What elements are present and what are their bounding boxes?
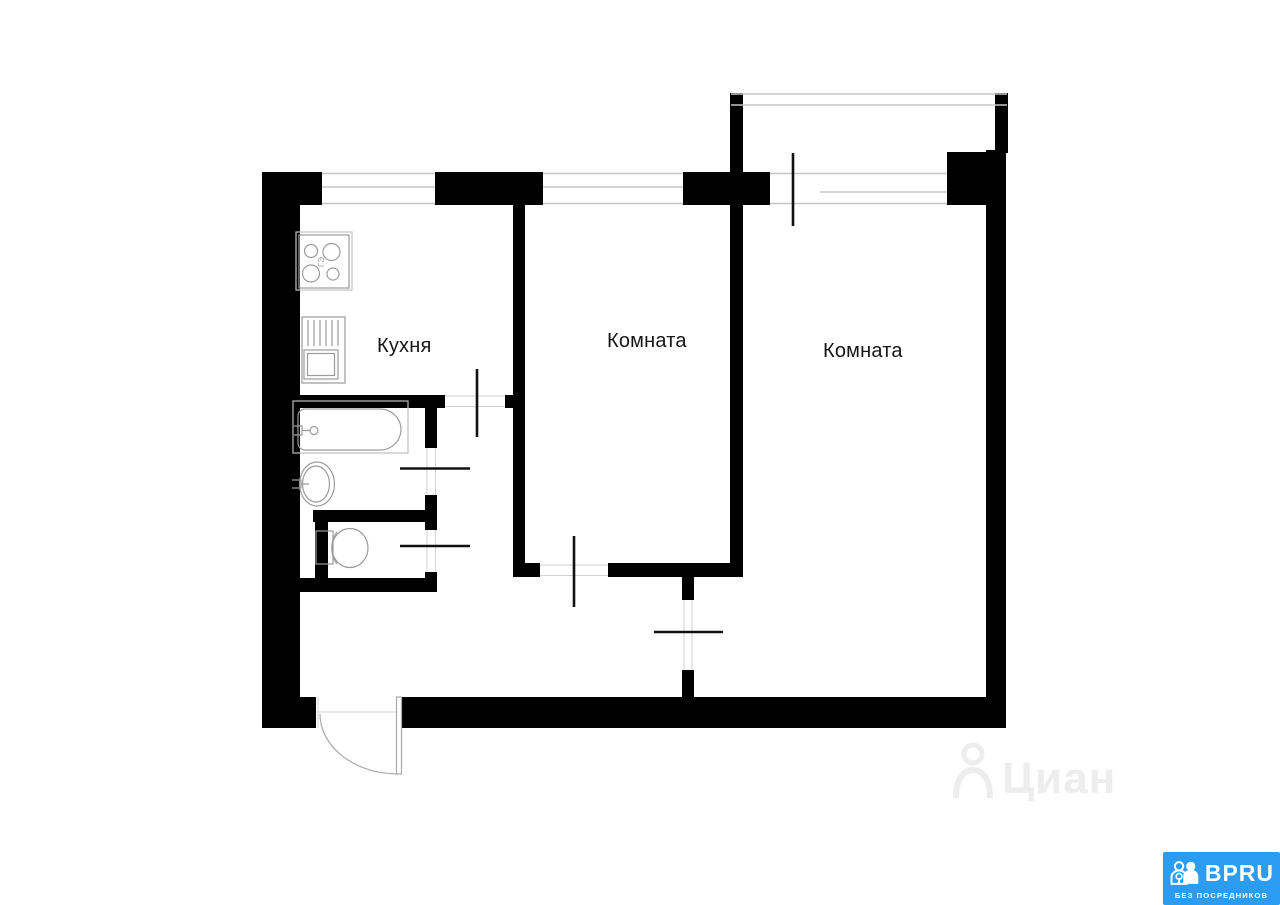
entrance-door [320, 697, 402, 774]
kitchen-sink-icon [302, 317, 345, 383]
wall-toilet-left [315, 510, 328, 582]
wall-room-small-bottom-right [608, 563, 743, 577]
wall-bath-toilet-divider [313, 510, 425, 522]
wall-toilet-bottom [300, 578, 437, 592]
people-key-icon [1169, 858, 1201, 888]
stove-icon: ГЭ [296, 232, 352, 290]
kitchen-door-jamb [445, 396, 505, 407]
windows [322, 94, 1007, 204]
wall-top-c [683, 172, 770, 205]
bathroom-door-jamb [427, 448, 436, 495]
wall-outer-bottom [400, 697, 1006, 728]
door-jambs [318, 396, 692, 728]
room-small-window [543, 174, 683, 204]
balcony-door-sill [770, 174, 820, 204]
wall-balcony-right [995, 93, 1008, 153]
room-large-door-jamb [684, 600, 692, 670]
room-large-window [820, 174, 947, 204]
entrance-door-jamb [318, 697, 398, 728]
watermark-text: Циан [1002, 754, 1116, 804]
wall-kitchen-door-stub [505, 395, 513, 408]
floor-plan-page: ГЭ [0, 0, 1280, 905]
watermark: Циан [938, 726, 1178, 816]
wall-bath-right-1 [425, 408, 437, 448]
wall-top-d [947, 152, 1006, 205]
wall-bath-right-2 [425, 495, 437, 530]
wall-room-small-left [513, 205, 525, 577]
wall-outer-bottom-left [262, 697, 316, 728]
toilet-door-jamb [427, 530, 436, 572]
wall-hall-room-large-2 [682, 670, 694, 697]
room-label-room-large: Комната [823, 340, 903, 363]
wall-top-a [262, 172, 322, 205]
kitchen-window [322, 174, 435, 204]
wall-outer-right [986, 150, 1006, 728]
brand-tagline: БЕЗ ПОСРЕДНИКОВ [1169, 891, 1274, 900]
brand-badge: BPRU БЕЗ ПОСРЕДНИКОВ [1163, 852, 1280, 905]
bathtub-icon [293, 401, 408, 453]
wall-room-small-bottom-left [513, 563, 540, 577]
walls [262, 93, 1008, 728]
brand-name: BPRU [1205, 862, 1274, 885]
room-label-room-small: Комната [607, 330, 687, 353]
wall-hall-room-large-1 [682, 577, 694, 600]
entrance-door-leaf [397, 697, 402, 774]
entrance-door-swing-arc [320, 714, 398, 774]
room-label-kitchen: Кухня [377, 335, 432, 358]
wall-room-small-right [730, 205, 743, 577]
wall-outer-left [262, 172, 300, 728]
stove-marking: ГЭ [317, 257, 326, 267]
balcony-railing [731, 94, 1007, 105]
wall-top-b [435, 172, 543, 205]
